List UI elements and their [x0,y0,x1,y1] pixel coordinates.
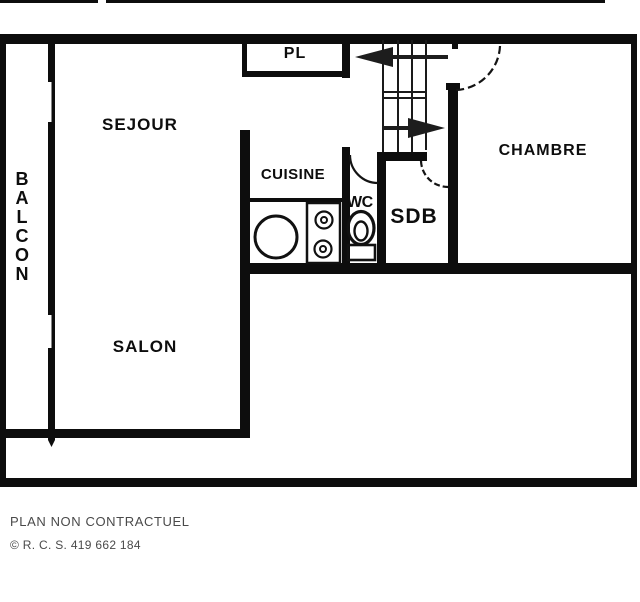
arrow-left-icon [355,47,448,67]
room-label-sdb: SDB [385,205,443,229]
plan-disclaimer: PLAN NON CONTRACTUEL [10,514,190,529]
stove-icon [307,203,340,263]
door-arc-sdb [421,161,448,187]
balcony-window [48,315,52,348]
wall-top [0,34,637,44]
room-label-cuisine: CUISINE [240,166,346,183]
wall-right [631,34,637,487]
room-label-closet: PL [242,45,348,63]
floorplan-drawing [0,0,640,602]
kitchen-fixtures [240,198,343,263]
wall-left [0,34,6,487]
wall-sdb-top [377,152,427,161]
room-label-salon: SALON [55,337,235,357]
room-label-sejour: SEJOUR [102,115,178,135]
toilet-icon [348,212,375,261]
door-arc-chambre [453,46,500,90]
wall-salon-bottom [0,429,250,438]
wall-interior-bottom [240,263,637,274]
plan-registration: © R. C. S. 419 662 184 [10,538,141,552]
sink-icon [255,216,297,258]
arrow-right-icon [382,118,445,138]
top-border-line [0,0,98,3]
counter-edge [240,198,343,202]
wall-sdb-chambre [448,83,458,273]
floorplan: SEJOUR BALCON PL CUISINE WC SDB CHAMBRE … [0,0,640,602]
wall-balcony-tip [48,440,55,447]
walls [0,0,637,487]
door-arc-wc [350,155,378,183]
balcony-window [48,82,52,122]
door-jamb [452,44,458,49]
room-label-wc: WC [347,194,373,212]
room-label-balcon: BALCON [11,170,33,284]
top-border-line [106,0,605,3]
closet-wall [242,71,348,77]
room-label-chambre: CHAMBRE [455,142,631,160]
wall-bottom [0,478,637,487]
